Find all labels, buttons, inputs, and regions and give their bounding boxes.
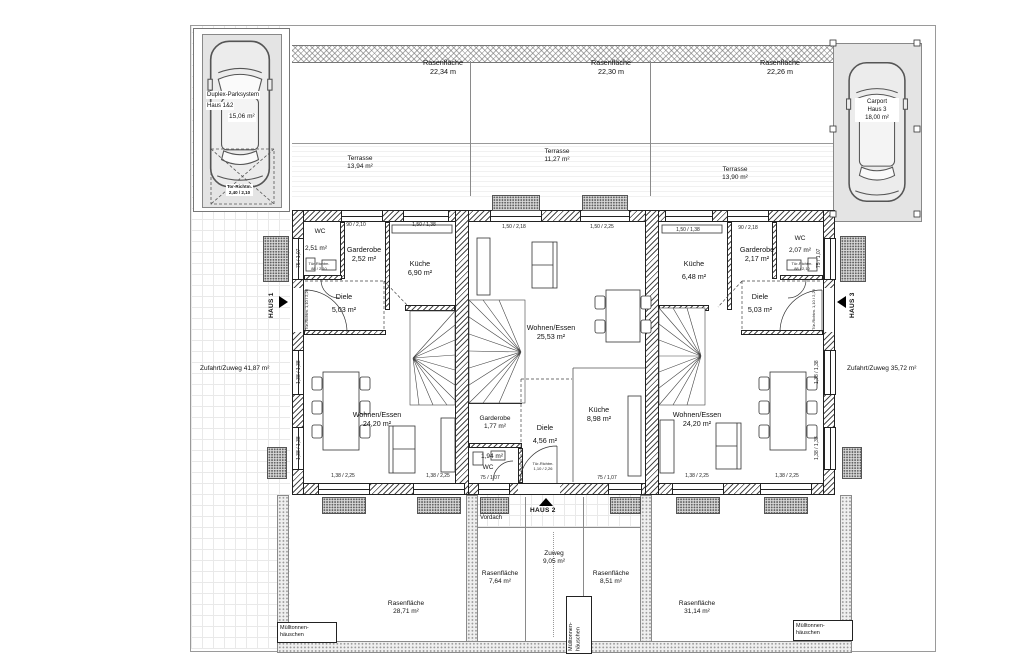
dim-h3-top-a: 1,50 / 1,38 — [668, 228, 708, 234]
dim-h1-top-a: 90 / 2,10 — [336, 223, 376, 229]
h3-wc-area: 2,07 m² — [780, 247, 820, 255]
dim-h2-top-b: 1,50 / 2,25 — [582, 225, 622, 231]
lawn-bottom-left: Rasenfläche28,71 m² — [371, 600, 441, 617]
duplex-parking-car — [208, 41, 274, 204]
dim-h1-bottom-a: 1,38 / 2,25 — [323, 474, 363, 480]
dim-h1-left-wc: 75 / 1,07 — [297, 238, 303, 278]
door-label-h1-wc: Tür-Richtm.88 / 2,10 — [303, 262, 335, 272]
carport-subtitle: Haus 3 — [856, 106, 898, 114]
terrace-3: Terrasse13,90 m² — [700, 166, 770, 183]
trash-shed-right: Mülltonnen-häuschen — [793, 620, 853, 641]
door-label-h2-entry: Tür-Richtm.1,10 / 2,26 — [527, 462, 559, 472]
h1-wohnen-label: Wohnen/Essen24,20 m² — [342, 410, 412, 429]
parking-gate-label: Tor-Richtm. 2,40 / 2,10 — [226, 184, 253, 196]
h2-wc-area: 1,94 m² — [472, 453, 512, 461]
marker-haus3: HAUS 3 — [849, 284, 856, 318]
dim-h2-bottom-k: 75 / 1,07 — [587, 476, 627, 482]
h1-garderobe-label: Garderobe2,52 m² — [334, 245, 394, 264]
haus3-entry-arrow-icon — [837, 296, 846, 308]
dim-h1-left-a: 1,38 / 1,38 — [297, 350, 303, 394]
dim-h2-top-a: 1,50 / 2,18 — [494, 225, 534, 231]
staircase-h1 — [410, 311, 455, 405]
h3-wc-name: WC — [785, 235, 815, 243]
h1-diele-label: Diele5,03 m² — [314, 292, 374, 315]
lawn-bottom-mid-right: Rasenfläche8,51 m² — [576, 570, 646, 587]
dim-h1-left-b: 1,38 / 1,38 — [297, 426, 303, 470]
h2-wohnen-label: Wohnen/Essen25,53 m² — [516, 323, 586, 342]
h3-diele-label: Diele5,03 m² — [730, 292, 790, 315]
dim-h3-right-b: 1,38 / 1,38 — [815, 426, 821, 470]
driveway-left-label: Zufahrt/Zuweg 41,87 m² — [200, 365, 278, 373]
staircase-h3 — [659, 308, 705, 405]
dim-h1-top-b: 1,50 / 1,38 — [404, 223, 444, 229]
trash-shed-left: Mülltonnen-häuschen — [277, 622, 337, 643]
h3-garderobe-label: Garderobe2,17 m² — [727, 245, 787, 264]
carport-label: Carport Haus 3 18,00 m² — [855, 98, 899, 122]
carport-area: 18,00 m² — [856, 114, 898, 122]
dim-h3-right-wc: 75 / 1,07 — [817, 238, 823, 278]
door-label-h1-entry: Tür-Richtm. 1,10 / 2,26 — [305, 288, 310, 332]
h3-wohnen-label: Wohnen/Essen24,20 m² — [662, 410, 732, 429]
door-label-h3-entry: Tür-Richtm. 1,10 / 2,26 — [812, 288, 817, 332]
trash-shed-mid: Mülltonnen-häuschen — [566, 596, 592, 654]
dim-h3-bottom-b: 1,38 / 2,25 — [767, 474, 807, 480]
lawn-top-2: Rasenfläche22,30 m — [576, 58, 646, 77]
terrace-2: Terrasse11,27 m² — [522, 148, 592, 165]
site-plan: Duplex-Parksystem Haus 1&2 15,06 m² Tor-… — [0, 0, 1024, 672]
lawn-bottom-right: Rasenfläche31,14 m² — [662, 600, 732, 617]
dim-h3-top-b: 90 / 2,18 — [728, 226, 768, 232]
parking-title: Duplex-Parksystem — [206, 91, 260, 99]
carport-title: Carport — [856, 98, 898, 106]
h2-wc-name: WC — [473, 464, 503, 472]
dim-h3-right-a: 1,38 / 1,38 — [815, 350, 821, 394]
h2-kueche-boundary — [573, 368, 645, 482]
marker-haus2: HAUS 2 — [530, 507, 556, 514]
staircase-h2 — [469, 300, 525, 403]
terrace-1: Terrasse13,94 m² — [325, 155, 395, 172]
h2-kueche-label: Küche8,98 m² — [569, 405, 629, 424]
lawn-top-1: Rasenfläche22,34 m — [408, 58, 478, 77]
vordach-label: Vordach — [480, 515, 502, 523]
lawn-bottom-mid-left: Rasenfläche7,64 m² — [465, 570, 535, 587]
haus2-entry-arrow-icon — [539, 498, 553, 506]
parking-subtitle: Haus 1&2 — [206, 102, 234, 110]
gate-label-line2: 2,40 / 2,10 — [227, 190, 252, 196]
driveway-right-label: Zufahrt/Zuweg 35,72 m² — [847, 365, 927, 373]
dim-h3-bottom-a: 1,38 / 2,25 — [677, 474, 717, 480]
lawn-top-3: Rasenfläche22,26 m — [745, 58, 815, 77]
dim-h1-bottom-b: 1,38 / 2,25 — [418, 474, 458, 480]
zuweg-label: Zuweg9,05 m² — [519, 550, 589, 567]
parking-area: 15,06 m² — [228, 113, 256, 122]
haus1-entry-arrow-icon — [279, 296, 288, 308]
dim-h2-bottom-wc: 75 / 1,07 — [470, 476, 510, 482]
h2-diele-label: Diele4,56 m² — [515, 423, 575, 446]
carport-car — [830, 40, 920, 217]
h1-wc-name: WC — [305, 228, 335, 236]
marker-haus1: HAUS 1 — [268, 284, 275, 318]
h1-kueche-label: Küche6,90 m² — [390, 259, 450, 278]
door-label-h3-wc: Tür-Richtm.88 / 2,10 — [786, 262, 818, 272]
h3-kueche-label: Küche6,48 m² — [664, 259, 724, 282]
